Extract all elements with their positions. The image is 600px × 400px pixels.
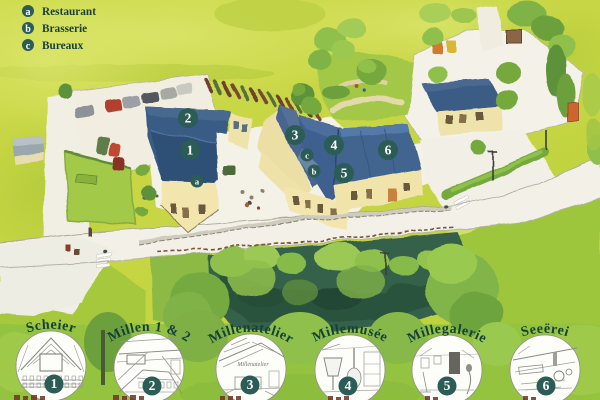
- svg-text:6: 6: [385, 143, 392, 158]
- svg-text:b: b: [25, 24, 31, 35]
- svg-text:3: 3: [292, 128, 299, 143]
- svg-text:c: c: [305, 151, 309, 161]
- svg-text:5: 5: [444, 378, 451, 393]
- svg-text:Millenatelier: Millenatelier: [236, 362, 269, 368]
- svg-text:b: b: [312, 167, 317, 177]
- svg-text:2: 2: [149, 378, 156, 393]
- svg-text:1: 1: [51, 376, 58, 391]
- svg-text:c: c: [26, 41, 31, 52]
- svg-text:3: 3: [247, 377, 254, 392]
- svg-text:5: 5: [341, 166, 348, 181]
- svg-text:6: 6: [543, 378, 550, 393]
- svg-text:2: 2: [185, 111, 192, 126]
- svg-text:Restaurant: Restaurant: [42, 6, 96, 18]
- svg-text:Brasserie: Brasserie: [42, 23, 87, 35]
- svg-text:4: 4: [345, 378, 352, 393]
- svg-text:a: a: [26, 7, 31, 18]
- svg-text:4: 4: [331, 138, 338, 153]
- svg-text:Bureaux: Bureaux: [42, 40, 84, 52]
- svg-text:1: 1: [187, 143, 194, 158]
